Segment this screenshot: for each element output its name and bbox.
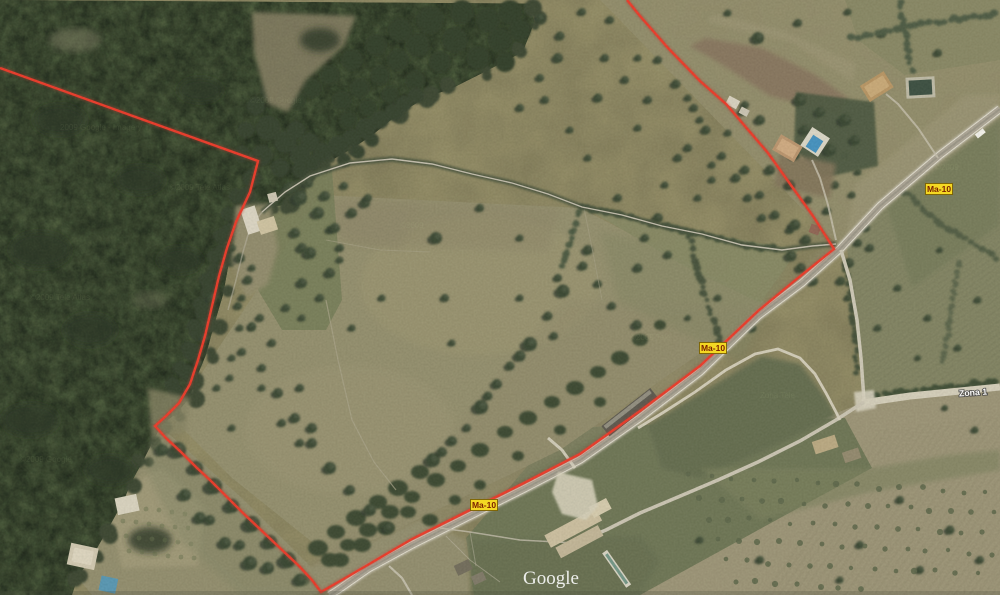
svg-text:©2009 Tele Atlas: ©2009 Tele Atlas xyxy=(170,183,230,192)
svg-text:©2009 Google: ©2009 Google xyxy=(250,96,302,105)
svg-text:©2009 Tele: ©2009 Tele xyxy=(630,333,671,342)
svg-text:©2009 Google: ©2009 Google xyxy=(20,455,72,464)
svg-text:Ma-10: Ma-10 xyxy=(701,343,725,353)
svg-text:Ma-10: Ma-10 xyxy=(472,500,496,510)
svg-text:©2009: ©2009 xyxy=(935,163,959,172)
svg-text:2009 Google - Imagery: 2009 Google - Imagery xyxy=(60,123,142,132)
svg-text:©2009: ©2009 xyxy=(400,221,424,230)
svg-text:Zona 1: Zona 1 xyxy=(959,387,988,399)
svg-text:©2009 Tele Atlas: ©2009 Tele Atlas xyxy=(30,293,90,302)
svg-text:Ma-10: Ma-10 xyxy=(927,184,951,194)
svg-text:Zona Tele: Zona Tele xyxy=(760,391,796,400)
svg-text:Google: Google xyxy=(523,568,579,589)
